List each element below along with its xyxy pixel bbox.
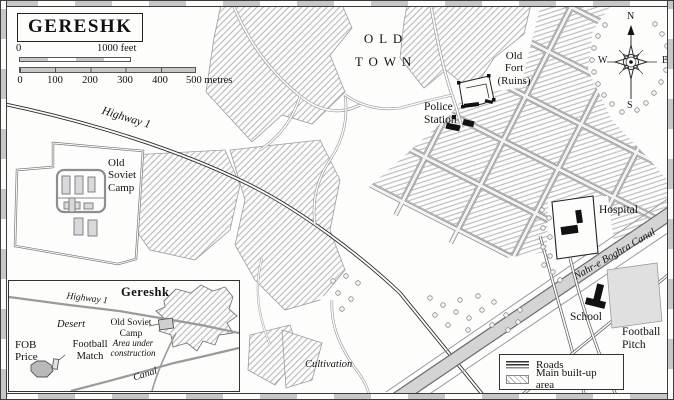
old-soviet-camp-label: Old Soviet Camp [108,157,136,194]
scale-tick-400: 400 [152,75,168,86]
scale-metre-end: 500 metres [186,75,232,87]
scale-feet-start: 0 [16,43,21,55]
map-title: GERESHK [17,13,143,42]
cultivation-label: Cultivation [305,359,352,371]
hospital-icon [552,196,598,259]
compass-south-label: S [627,100,633,111]
inset-camp-icon [158,318,173,330]
legend-built-up-icon [506,375,529,384]
scale-bar-metres [19,67,196,73]
scale-tick-300: 300 [117,75,133,86]
hospital-label: Hospital [599,204,638,217]
cultivation-fields [248,325,322,388]
scale-tick-0: 0 [17,75,22,86]
inset-map: Gereshk Highway 1 Desert Old Soviet Camp… [8,280,240,392]
compass-north-label: N [627,11,634,22]
football-pitch-label: Football Pitch [622,326,660,352]
legend-roads-icon [506,361,529,370]
inset-camp-label: Old Soviet Camp [103,318,159,339]
school-icon [585,282,610,309]
old-fort-label: Old Fort (Ruins) [483,50,545,87]
football-pitch-icon [607,263,662,328]
old-town-label: OLD TOWN [336,28,436,74]
inset-football-icon [52,359,58,370]
gereshk-map: GERESHK 0 1000 feet 0 100 200 300 400 50… [0,0,674,400]
compass-rose-icon [607,25,657,99]
inset-football-label: Football Match [62,339,118,363]
school-label: School [570,311,602,324]
legend: Roads Main built-up area [499,354,624,390]
police-station-label: Police Station [424,101,457,127]
inset-fob-label: FOB Price [15,339,38,364]
orchard-clearings [320,252,554,347]
inset-town-label: Gereshk [121,285,169,299]
compass-east-label: E [662,55,668,66]
scale-tick-200: 200 [82,75,98,86]
legend-built-up-label: Main built-up area [536,367,617,391]
inset-desert-label: Desert [57,319,85,331]
scale-bar-feet [19,57,131,62]
scale-tick-100: 100 [47,75,63,86]
compass-west-label: W [598,55,607,66]
scale-feet-end: 1000 feet [97,43,136,55]
